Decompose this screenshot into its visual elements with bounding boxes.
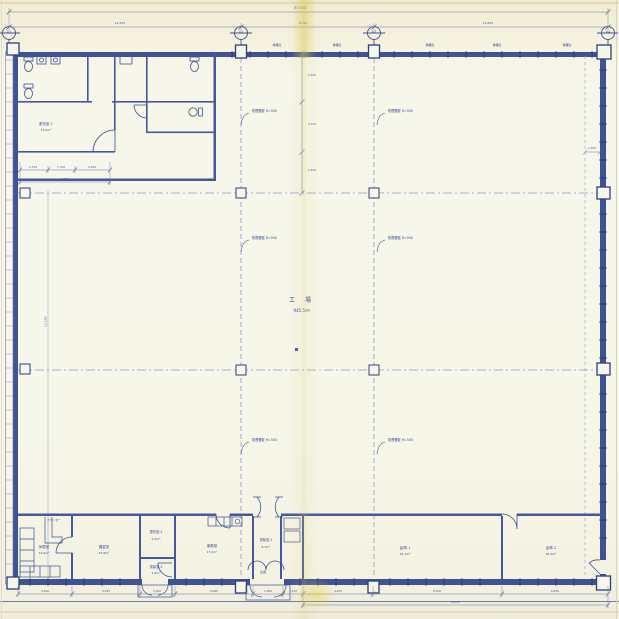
- bottom-dim-3: 2,200: [153, 590, 161, 593]
- entrance-label: 玄関: [260, 571, 266, 574]
- smoke-barrier-note: 防煙垂壁 H=500: [388, 237, 413, 241]
- window-tag: 排煙窓: [272, 44, 281, 47]
- eave-dimension: 1,500: [588, 147, 596, 150]
- room-label-locker1: 更衣室-1: [39, 122, 53, 126]
- room-area-vestibule2: 1.6m²: [152, 572, 161, 575]
- room-area-office: 17.0m²: [207, 551, 218, 554]
- toilet-doors: [93, 105, 147, 152]
- smoke-barrier-note: 防煙垂壁 H=500: [388, 439, 413, 443]
- room-area-factory: 945.5m²: [294, 309, 311, 314]
- window-tag: 排煙窓: [562, 44, 571, 47]
- center-mark: [295, 348, 298, 351]
- bottom-dim-8: 8,100: [433, 590, 441, 593]
- overall-dimension: 37,540: [294, 6, 306, 10]
- smoke-barrier-note: 防煙垂壁 H=500: [252, 110, 277, 114]
- structural-grid-lines: [18, 56, 600, 578]
- room-area-vestibule1: 6.7m²: [262, 546, 271, 549]
- grid-bubble-x4: X4: [606, 31, 610, 35]
- left-overall-dimension: 11,500: [44, 316, 47, 327]
- smoke-barrier-note: 防煙垂壁 H=500: [252, 439, 277, 443]
- bottom-dim-2: 4,250: [102, 590, 110, 593]
- room-label-training: 講習室: [99, 545, 110, 549]
- room-label-storage2: 倉庫-2: [546, 546, 557, 550]
- bottom-dim-6: 1,250: [289, 590, 297, 593]
- bottom-dim-7: 4,400: [334, 590, 342, 593]
- chain-dim-3: 2,550: [308, 169, 316, 172]
- room-label-locker2: 更衣室-2: [150, 531, 163, 535]
- room-area-storage1: 31.1m²: [400, 553, 411, 556]
- room-label-office: 事務室: [207, 544, 218, 548]
- bottom-dim-1: 3,400: [41, 590, 49, 593]
- room-area-locker2: 5.0m²: [152, 538, 161, 541]
- grid-bubble-x2: X2: [239, 31, 243, 35]
- secondary-dimension-lines: [16, 53, 610, 609]
- smoke-barrier-note: 防煙垂壁 H=500: [252, 237, 277, 241]
- block-dim-1: 1,750: [29, 166, 37, 169]
- room-area-locker1: 13.0m²: [41, 129, 52, 132]
- block-dim-3: 2,200: [88, 166, 96, 169]
- grid-bubble-x3: X3: [372, 31, 376, 35]
- window-tag: 排煙窓: [332, 44, 341, 47]
- bottom-dim-total: 19,100: [450, 601, 460, 604]
- block-dim-total: 5,650: [61, 178, 69, 181]
- top-dimension-3: 14,650: [483, 22, 494, 25]
- smoke-barrier-leaders: [241, 113, 385, 454]
- top-dimension-2: 8,340: [299, 22, 308, 25]
- wall-mullion-ticks: [30, 51, 607, 586]
- top-dimension-1: 14,550: [115, 22, 126, 25]
- window-tag: 排煙窓: [425, 44, 434, 47]
- chain-dim-1: 2,950: [308, 74, 316, 77]
- block-dim-2: 1,700: [57, 166, 65, 169]
- room-area-training: 21.8m²: [99, 552, 110, 555]
- room-label-factory: 工 場: [289, 298, 315, 305]
- toilet-block-walls: [13, 52, 216, 181]
- left-wall-hatch: [6, 52, 14, 584]
- smoke-barrier-note: 防煙垂壁 H=500: [388, 110, 413, 114]
- top-dimension-lines: [7, 8, 611, 30]
- grid-bubbles: [0, 27, 618, 53]
- room-area-storage2: 25.4m²: [546, 553, 557, 556]
- bottom-dim-5: 1,900: [264, 590, 272, 593]
- window-tag: 排煙窓: [492, 44, 501, 47]
- room-label-storage1: 倉庫-1: [400, 546, 411, 550]
- toilet-fixtures: [24, 56, 203, 116]
- chain-dim-2: 3,150: [308, 123, 316, 126]
- room-label-rest: 休憩室: [39, 545, 50, 549]
- bottom-dim-4: 4,900: [210, 590, 218, 593]
- room-label-vestibule2: 風除室-2: [150, 566, 163, 570]
- room-area-rest: 14.0m²: [39, 552, 50, 555]
- bottom-dim-9: 6,650: [551, 590, 559, 593]
- floor-plan-sheet: 37,540 14,550 8,340 14,650 X1 X2 X3 X4 排…: [0, 0, 619, 619]
- grid-bubble-x1: X1: [7, 31, 11, 35]
- exterior-walls: [13, 52, 606, 585]
- counter-label: カウンター: [47, 519, 61, 522]
- room-label-vestibule1: 風除室-1: [260, 539, 273, 543]
